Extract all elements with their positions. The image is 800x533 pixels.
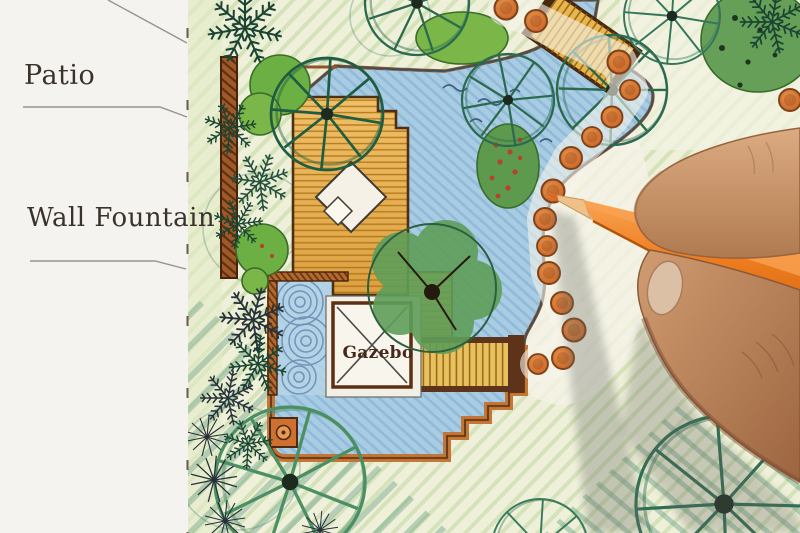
stepping-stone bbox=[620, 80, 640, 100]
stepping-stone bbox=[537, 236, 557, 256]
stepping-stone bbox=[602, 107, 623, 128]
pool-fixture bbox=[270, 418, 297, 447]
stepping-stone bbox=[608, 51, 631, 74]
stepping-stone bbox=[779, 89, 800, 111]
shrub bbox=[242, 268, 268, 294]
stepping-stone bbox=[538, 262, 560, 284]
tree-trunk bbox=[424, 284, 440, 300]
stepping-stone bbox=[582, 127, 602, 147]
stepping-stone bbox=[528, 354, 548, 374]
shrub bbox=[236, 224, 288, 276]
garden-plan-photo: Patio Wall Fountain Gazebo bbox=[0, 0, 800, 533]
stepping-stone bbox=[560, 147, 582, 169]
label-patio: Patio bbox=[24, 62, 95, 89]
label-wall-fountain: Wall Fountain bbox=[27, 205, 215, 231]
shrub bbox=[239, 93, 281, 135]
garden-plan-drawing bbox=[0, 0, 800, 533]
label-gazebo: Gazebo bbox=[341, 345, 415, 362]
stepping-stone bbox=[525, 10, 547, 32]
stepping-stone bbox=[495, 0, 518, 20]
